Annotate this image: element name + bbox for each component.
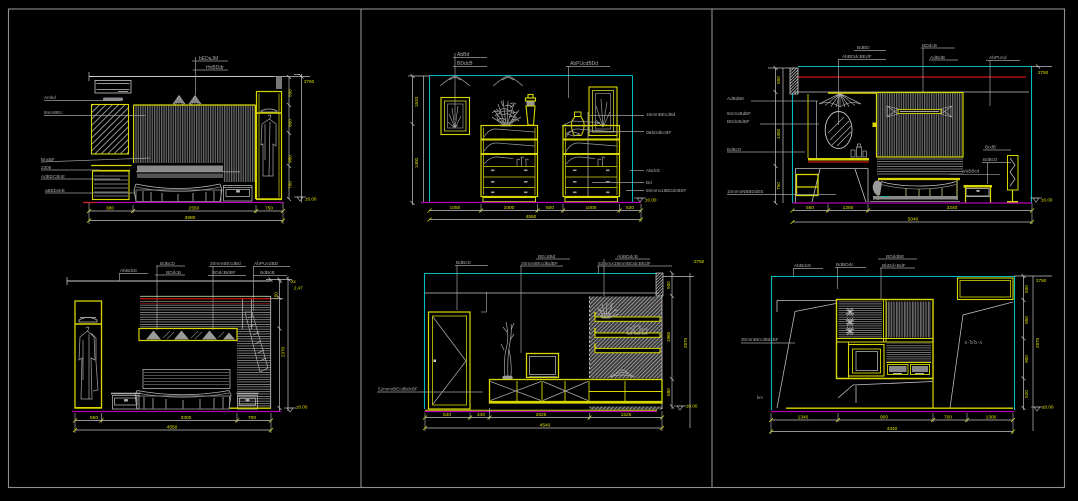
svg-text:30mmBEcdBdcBF: 30mmBEcdBdcBF (741, 337, 779, 342)
svg-text:±0.00: ±0.00 (1042, 405, 1054, 410)
svg-text:±0.00: ±0.00 (296, 405, 308, 410)
svg-text:BcdB: BcdB (985, 145, 996, 150)
svg-text:±0.00: ±0.00 (686, 404, 698, 409)
svg-text:AbPUcdBDd: AbPUcdBDd (570, 61, 598, 67)
svg-text:2750: 2750 (694, 259, 705, 264)
svg-text:2750: 2750 (1036, 278, 1047, 283)
svg-text:AbBd: AbBd (457, 52, 469, 58)
svg-text:380: 380 (106, 206, 114, 212)
svg-text:900: 900 (1024, 355, 1029, 363)
svg-text:BdBcB: BdBcB (260, 270, 275, 276)
svg-text:3240: 3240 (947, 205, 958, 211)
svg-text:52mmxBEcdBdcBF: 52mmxBEcdBdcBF (378, 387, 418, 392)
svg-text:520: 520 (1024, 390, 1029, 398)
svg-text:750: 750 (776, 182, 781, 190)
svg-text:a/aBBcd: a/aBBcd (962, 169, 980, 174)
svg-text:3300: 3300 (181, 415, 192, 421)
svg-text:700: 700 (248, 415, 256, 421)
svg-text:4340: 4340 (887, 426, 898, 432)
svg-text:4550: 4550 (526, 214, 537, 220)
svg-text:±0.00: ±0.00 (1041, 198, 1053, 203)
svg-text:550: 550 (806, 205, 814, 211)
svg-text:1960: 1960 (666, 331, 671, 342)
svg-text:550: 550 (90, 415, 98, 421)
svg-text:∧-ЪЪ-∧: ∧-ЪЪ-∧ (964, 340, 983, 346)
svg-text:1450: 1450 (776, 128, 781, 139)
svg-text:1000: 1000 (504, 205, 515, 211)
svg-text:1400: 1400 (414, 157, 419, 168)
svg-text:900: 900 (880, 415, 888, 421)
svg-text:50mmx18BDdcBEF: 50mmx18BDdcBEF (646, 188, 687, 193)
svg-text:2750: 2750 (304, 79, 315, 84)
svg-text:±0.00: ±0.00 (305, 197, 317, 202)
svg-text:500: 500 (666, 281, 671, 289)
svg-text:2870: 2870 (683, 337, 688, 348)
svg-text:750: 750 (265, 206, 273, 212)
svg-text:BdBcD: BdBcD (456, 260, 471, 266)
svg-text:950: 950 (1024, 316, 1029, 324)
svg-text:AbPUcd: AbPUcd (989, 55, 1007, 61)
svg-text:2870: 2870 (1035, 337, 1040, 348)
svg-text:AbBdcE: AbBdcE (120, 268, 137, 274)
svg-text:2370: 2370 (281, 346, 286, 357)
svg-text:BDdcBdBF: BDdcBdBF (212, 270, 236, 276)
svg-text:2x: 2x (291, 279, 296, 284)
svg-text:Bd: Bd (646, 180, 652, 185)
svg-text:bm: bm (757, 395, 763, 400)
svg-text:AdBDCBnE: AdBDCBnE (41, 174, 65, 179)
svg-text:4550: 4550 (167, 425, 178, 431)
svg-text:440: 440 (477, 412, 485, 418)
svg-text:750: 750 (288, 181, 293, 189)
svg-text:ABdcE: ABdcE (646, 168, 660, 173)
svg-text:500: 500 (546, 205, 554, 211)
svg-text:530: 530 (626, 205, 634, 211)
svg-text:AbBdcE: AbBdcE (794, 263, 811, 269)
svg-text:10mmxNBBDdEE: 10mmxNBBDdEE (727, 189, 764, 194)
svg-text:aBBDxkB: aBBDxkB (45, 188, 65, 193)
svg-text:500: 500 (1024, 285, 1029, 293)
svg-text:5040: 5040 (908, 217, 919, 223)
svg-text:4540: 4540 (540, 423, 551, 429)
svg-text:2750: 2750 (1038, 70, 1049, 75)
svg-text:1250: 1250 (843, 205, 854, 211)
svg-text:BdBD: BdBD (857, 45, 870, 51)
svg-text:2.47: 2.47 (294, 286, 303, 291)
svg-text:2825: 2825 (536, 412, 547, 418)
svg-text:AbBDdcBEdF: AbBDdcBEdF (842, 54, 872, 60)
svg-text:540: 540 (443, 412, 451, 418)
svg-text:150: 150 (274, 292, 279, 300)
svg-text:6mmxBdBF: 6mmxBdBF (727, 111, 751, 116)
svg-text:2550: 2550 (189, 206, 200, 212)
svg-text:BDdcB: BDdcB (457, 61, 473, 67)
svg-text:3680: 3680 (185, 215, 196, 221)
svg-text:AbPUcdBD: AbPUcdBD (254, 261, 279, 267)
svg-text:800: 800 (288, 119, 293, 127)
svg-text:1525: 1525 (621, 412, 632, 418)
svg-text:550: 550 (776, 76, 781, 84)
svg-text:BdBcD: BdBcD (727, 147, 742, 152)
svg-text:20mmBEcdBd: 20mmBEcdBd (210, 261, 241, 267)
svg-text:BdBDdc: BdBDdc (836, 262, 854, 268)
svg-text:±0.00: ±0.00 (645, 198, 657, 203)
svg-text:1340: 1340 (798, 415, 809, 421)
svg-text:1000: 1000 (586, 205, 597, 211)
svg-text:BDdcBdBF: BDdcBdBF (727, 119, 750, 124)
svg-text:Amkd: Amkd (44, 95, 56, 100)
svg-text:BdBcD: BdBcD (983, 157, 998, 162)
svg-text:950: 950 (288, 155, 293, 163)
svg-text:AdBdBE: AdBdBE (727, 96, 744, 101)
svg-text:2306: 2306 (41, 165, 52, 170)
svg-text:15mmBEcdBd: 15mmBEcdBd (646, 112, 676, 117)
svg-text:1300: 1300 (986, 415, 997, 421)
svg-text:700: 700 (944, 415, 952, 421)
svg-text:500: 500 (288, 89, 293, 97)
svg-text:5mmBEc: 5mmBEc (44, 110, 63, 115)
svg-text:1050: 1050 (450, 205, 461, 211)
svg-text:680: 680 (666, 388, 671, 396)
svg-text:0BbDdEcBF: 0BbDdEcBF (646, 130, 671, 135)
svg-text:1520: 1520 (414, 96, 419, 107)
